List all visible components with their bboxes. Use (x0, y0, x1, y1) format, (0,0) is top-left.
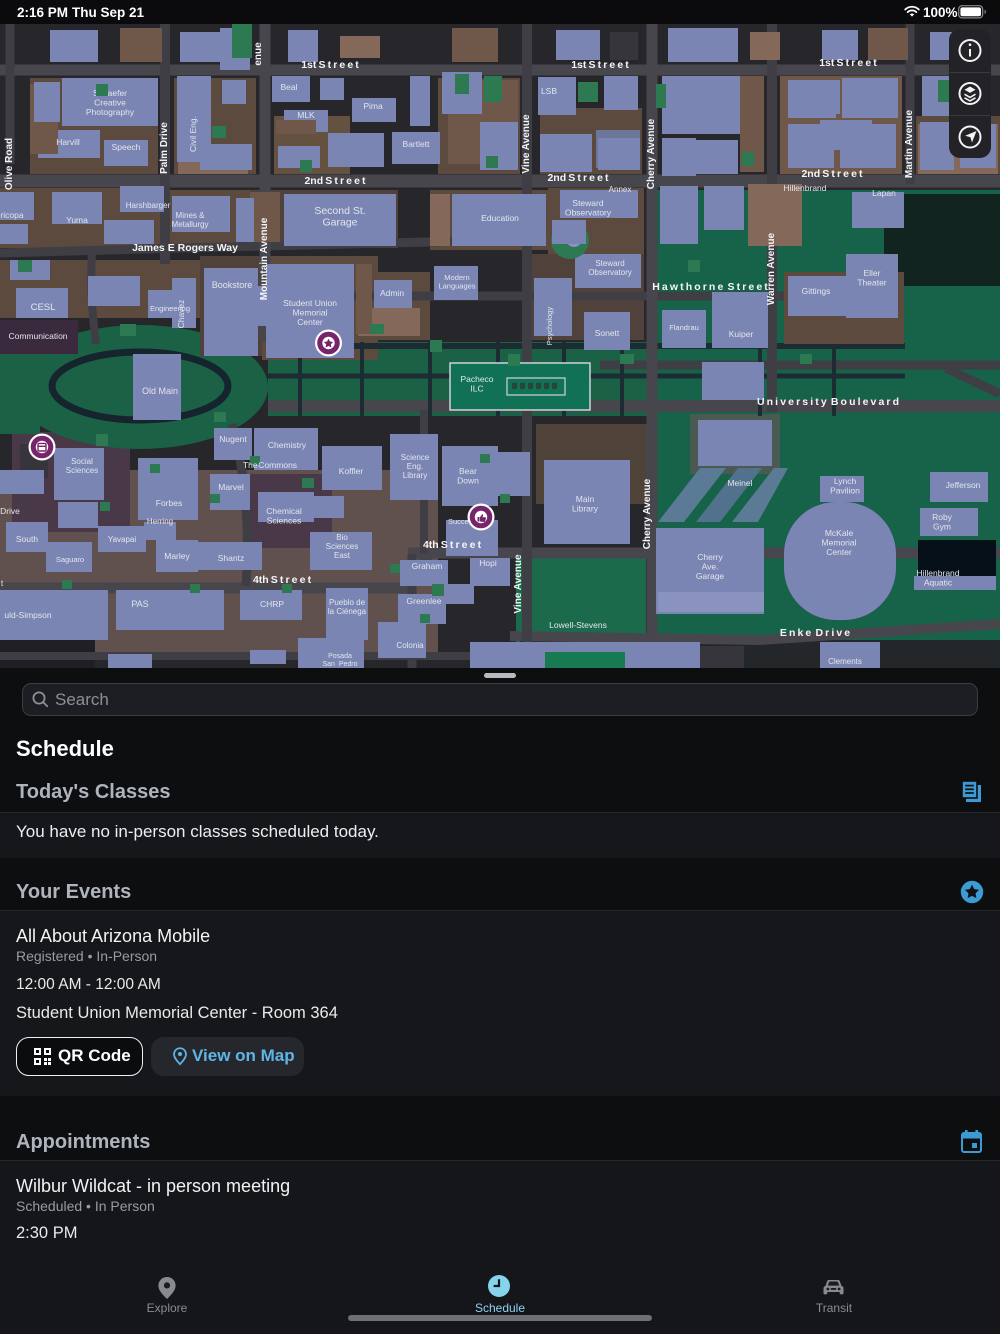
svg-text:Hillenbrand: Hillenbrand (784, 183, 827, 193)
svg-text:H a w t h o r n e S t r e e t: H a w t h o r n e S t r e e t (652, 281, 768, 293)
svg-text:Bartlett: Bartlett (403, 139, 431, 149)
svg-text:1st S t r e e t: 1st S t r e e t (571, 59, 629, 71)
svg-text:Colonia: Colonia (396, 641, 424, 650)
svg-text:Yavapai: Yavapai (108, 535, 137, 544)
svg-text:LynchPavilion: LynchPavilion (830, 476, 860, 496)
svg-text:U n i v e r s i t y B o u l e: U n i v e r s i t y B o u l e v a r d (757, 396, 899, 408)
svg-text:Communication: Communication (8, 331, 67, 341)
svg-text:RobyGym: RobyGym (932, 512, 953, 532)
svg-text:Clements: Clements (828, 657, 862, 666)
svg-text:Flandrau: Flandrau (669, 323, 699, 332)
svg-text:Cherry Avenue: Cherry Avenue (646, 118, 657, 189)
svg-text:Marley: Marley (164, 551, 190, 561)
svg-text:ChemicalSciences: ChemicalSciences (266, 506, 302, 526)
svg-text:2nd S t r e e t: 2nd S t r e e t (304, 175, 366, 187)
svg-text:Beal: Beal (280, 82, 297, 92)
svg-text:Shantz: Shantz (218, 553, 244, 563)
svg-text:CHRP: CHRP (260, 599, 284, 609)
svg-text:Mountain Avenue: Mountain Avenue (259, 217, 270, 300)
svg-text:South: South (16, 534, 38, 544)
svg-text:Kuiper: Kuiper (729, 329, 754, 339)
svg-text:Koffler: Koffler (339, 466, 364, 476)
svg-text:Yuma: Yuma (66, 215, 88, 225)
svg-text:Graham: Graham (412, 561, 443, 571)
svg-text:Old Main: Old Main (142, 386, 178, 396)
svg-text:Jefferson: Jefferson (946, 480, 981, 490)
svg-text:Cherry Avenue: Cherry Avenue (642, 478, 653, 549)
svg-text:McKaleMemorialCenter: McKaleMemorialCenter (822, 528, 857, 557)
svg-text:Chemistry: Chemistry (268, 440, 307, 450)
svg-text:Bookstore: Bookstore (212, 280, 253, 290)
svg-text:uld-Simpson: uld-Simpson (4, 610, 52, 620)
svg-text:Lowell-Stevens: Lowell-Stevens (549, 620, 607, 630)
svg-text:Admin: Admin (380, 288, 404, 298)
svg-text:E n k e D r i v e: E n k e D r i v e (780, 627, 850, 639)
svg-text:The Commons: The Commons (243, 460, 297, 470)
svg-text:Vine Avenue: Vine Avenue (521, 114, 532, 174)
svg-text:BearDown: BearDown (457, 466, 479, 486)
svg-text:Pueblo dela Ciénega: Pueblo dela Ciénega (328, 598, 367, 616)
svg-text:Vine Avenue: Vine Avenue (513, 554, 524, 614)
svg-text:Speech: Speech (112, 142, 141, 152)
svg-text:1st S t r e e t: 1st S t r e e t (819, 57, 877, 69)
svg-text:4th S t r e e t: 4th S t r e e t (423, 539, 482, 551)
svg-text:2nd S t r e e t: 2nd S t r e e t (547, 172, 609, 184)
svg-text:Greenlee: Greenlee (407, 596, 442, 606)
svg-text:Sonett: Sonett (595, 328, 620, 338)
svg-text:Warren Avenue: Warren Avenue (766, 232, 777, 305)
svg-text:1st S t r e e t: 1st S t r e e t (301, 59, 359, 71)
svg-text:Drive: Drive (0, 506, 20, 516)
svg-text:CESL: CESL (31, 302, 56, 313)
svg-text:4th S t r e e t: 4th S t r e e t (253, 574, 312, 586)
svg-text:LSB: LSB (541, 86, 557, 96)
svg-text:Nugent: Nugent (219, 434, 247, 444)
svg-text:Harvill: Harvill (56, 137, 80, 147)
svg-text:Education: Education (481, 213, 519, 223)
svg-text:Martin Avenue: Martin Avenue (904, 109, 915, 178)
svg-text:Hopi: Hopi (479, 558, 497, 568)
svg-text:Olive Road: Olive Road (4, 138, 15, 190)
svg-text:Engineering: Engineering (150, 304, 190, 313)
svg-text:James E Rogers Way: James E Rogers Way (132, 242, 238, 254)
svg-text:Civil Eng.: Civil Eng. (188, 116, 198, 152)
svg-text:Palm Drive: Palm Drive (159, 122, 170, 174)
svg-text:PAS: PAS (131, 599, 148, 609)
svg-text:enue: enue (253, 42, 264, 66)
svg-text:MLK: MLK (297, 110, 315, 120)
svg-text:Annex: Annex (609, 185, 632, 194)
svg-text:Marvel: Marvel (218, 482, 244, 492)
svg-text:Gittings: Gittings (802, 286, 831, 296)
svg-text:Psychology: Psychology (545, 307, 554, 346)
svg-text:Forbes: Forbes (156, 498, 182, 508)
svg-text:2nd S t r e e t: 2nd S t r e e t (801, 168, 863, 180)
svg-text:Pima: Pima (363, 101, 383, 111)
svg-text:ricopa: ricopa (0, 210, 23, 220)
svg-text:Saguaro: Saguaro (56, 555, 84, 564)
svg-text:Mines &Metallurgy: Mines &Metallurgy (172, 211, 209, 229)
svg-text:Harshbarger: Harshbarger (126, 201, 171, 210)
svg-text:Lapan: Lapan (872, 188, 896, 198)
svg-text:Meinel: Meinel (727, 478, 752, 488)
svg-text:Herring: Herring (147, 517, 173, 526)
